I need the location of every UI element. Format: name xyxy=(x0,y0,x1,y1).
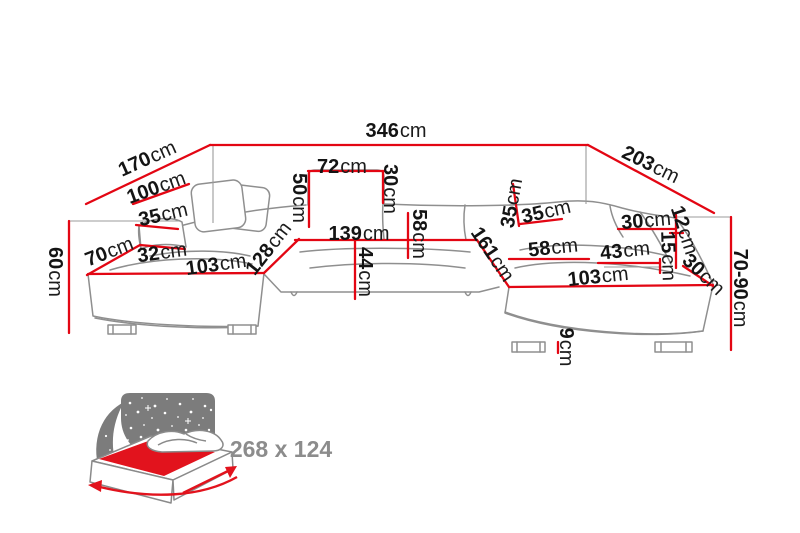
dim-label-dim-60: 60cm xyxy=(44,247,66,297)
sofa-left-chaise xyxy=(88,273,264,327)
dim-label-dim-50: 50cm xyxy=(288,173,310,223)
sofa-dimension-diagram: 346cm170cm203cm100cm35cm70cm32cm103cm60c… xyxy=(0,0,800,533)
dim-label-dim-15: 15cm xyxy=(656,231,680,282)
dim-label-dim-346: 346cm xyxy=(365,120,426,142)
sofa-pillow-front xyxy=(190,179,246,233)
dim-line-103-left xyxy=(88,273,264,274)
dim-label-dim-44: 44cm xyxy=(354,247,376,297)
sofa-right-chaise xyxy=(505,285,713,334)
sleeper-bed-icon xyxy=(88,393,237,503)
dim-label-dim-70-90: 70-90cm xyxy=(729,249,751,328)
dim-label-dim-43: 43cm xyxy=(599,237,651,264)
dim-label-dim-139: 139cm xyxy=(328,223,389,245)
dim-label-dim-35-right: 35cm xyxy=(519,196,573,229)
dim-label-dim-30-headrest: 30cm xyxy=(379,164,401,214)
dim-label-dim-58-mid: 58cm xyxy=(408,209,430,259)
dim-label-dim-9: 9cm xyxy=(555,328,577,367)
bed-blanket xyxy=(147,430,223,452)
dim-label-dim-58-right: 58cm xyxy=(527,234,579,261)
dim-label-dim-161: 161cm xyxy=(466,223,518,286)
sleeping-size-label: 268 x 124 xyxy=(230,436,333,462)
dim-label-dim-72: 72cm xyxy=(317,156,367,178)
sofa-feet-right xyxy=(512,342,692,352)
dim-label-dim-203: 203cm xyxy=(618,142,683,189)
dim-label-dim-30-right: 30cm xyxy=(620,208,672,234)
diagram-canvas: 346cm170cm203cm100cm35cm70cm32cm103cm60c… xyxy=(0,0,800,533)
